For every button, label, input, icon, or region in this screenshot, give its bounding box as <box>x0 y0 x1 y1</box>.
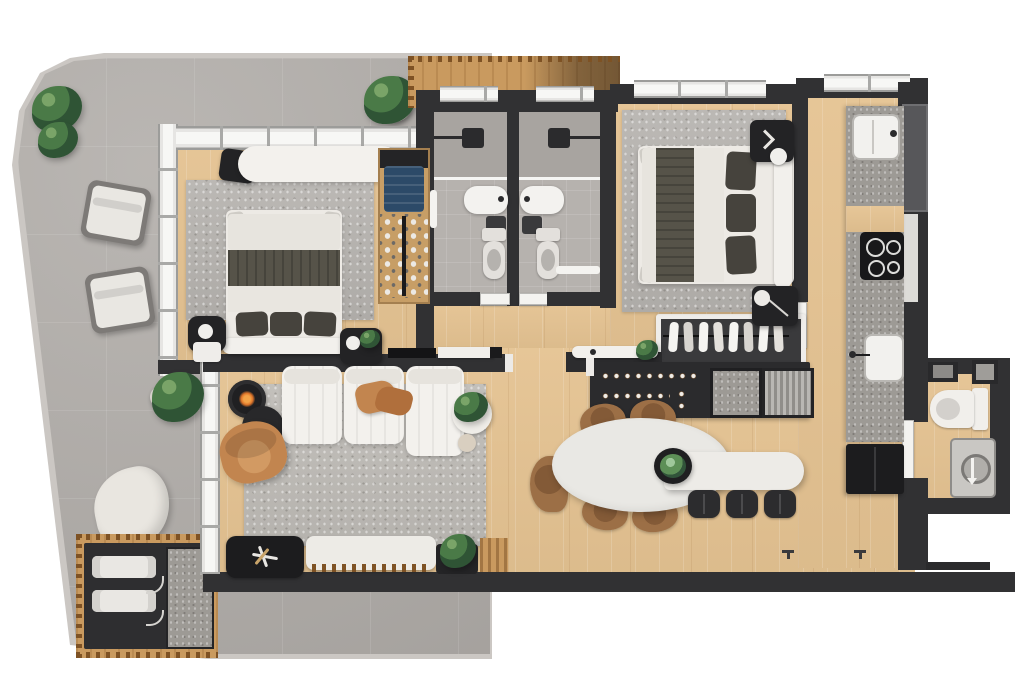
bedside-box <box>193 342 221 362</box>
master-window <box>634 80 766 98</box>
counter-wood-section <box>846 206 904 232</box>
mirror-cabinet <box>972 360 998 384</box>
lounge-chair <box>84 265 157 334</box>
deck-edge <box>76 534 218 540</box>
bed-pillow <box>726 194 756 232</box>
bathrooms-right-wall <box>600 92 616 308</box>
bed-pillow <box>270 312 302 336</box>
faucet <box>524 196 530 202</box>
prep-sink <box>864 334 904 382</box>
shower-glass <box>434 177 507 180</box>
bathroom2-toilet-tank <box>536 228 560 241</box>
lamp <box>754 290 770 306</box>
kitchen-tall-cabinet <box>902 104 928 212</box>
clothes-stack <box>384 166 424 212</box>
garment <box>743 322 753 352</box>
bed-pillow <box>235 311 268 337</box>
laundry-toilet-tank <box>972 388 988 430</box>
bed-throw <box>228 250 340 286</box>
bathroom1-bottom-wall <box>422 292 480 306</box>
wall-shelf <box>928 362 958 382</box>
bed-pillow <box>725 235 757 275</box>
tv-bar <box>388 348 436 358</box>
shoe-rack-rod <box>402 216 406 296</box>
kitchen-wall-panel <box>902 214 918 302</box>
wall-cap <box>586 358 594 376</box>
faucet <box>890 130 897 137</box>
shower-glass <box>519 177 600 180</box>
bathroom1-toilet-tank <box>482 228 506 241</box>
cooktop <box>860 232 904 280</box>
bench-tray-table <box>226 536 304 578</box>
bar-stool <box>726 490 758 518</box>
kitchen-sink <box>852 114 900 160</box>
wall-cap <box>505 354 513 372</box>
shelf-end <box>490 347 502 358</box>
lamp <box>770 148 787 165</box>
door-mark <box>859 550 862 559</box>
towel-rail <box>556 266 600 274</box>
faucet <box>849 351 856 358</box>
bed-pillow <box>303 311 336 337</box>
floor-console <box>926 562 990 570</box>
faucet <box>498 196 504 202</box>
ac-unit <box>92 556 156 578</box>
lamp <box>198 324 213 339</box>
stone-cabinet-panel <box>710 368 762 418</box>
bathroom2-bottom-wall <box>547 292 609 306</box>
garment <box>683 322 694 352</box>
garment <box>758 322 769 353</box>
ledge-decor <box>590 349 596 355</box>
candle-flame <box>239 391 255 407</box>
shower-arm <box>570 136 600 139</box>
sofa-module <box>282 366 342 444</box>
bottom-wall <box>203 572 1015 592</box>
planter-bowl <box>654 448 692 484</box>
bathroom1-toilet <box>483 241 505 279</box>
bed-throw <box>656 148 694 282</box>
bathroom2-window <box>536 86 594 102</box>
bar-stool <box>688 490 720 518</box>
deck-edge <box>76 652 218 658</box>
bathroom2-toilet <box>537 241 559 279</box>
bed-headboard <box>222 338 346 354</box>
radiator-unit <box>762 368 814 418</box>
bench-slats <box>312 564 432 572</box>
bedroom1-desk <box>238 146 400 182</box>
living-balcony-door <box>200 340 220 574</box>
master-right-wall <box>792 84 808 302</box>
garment <box>728 322 739 352</box>
bathroom1-pocket-door <box>480 293 510 305</box>
deck-edge <box>408 56 414 108</box>
bed-duvet <box>228 286 340 312</box>
bar-stool <box>764 490 796 518</box>
lamp <box>346 336 360 350</box>
garment <box>773 322 784 352</box>
garment <box>698 322 708 352</box>
towel-rail <box>430 190 437 228</box>
wine-bottle-column <box>676 388 688 414</box>
washing-machine <box>950 438 996 498</box>
side-tray <box>458 434 476 452</box>
lounge-chair <box>79 179 152 247</box>
bathroom2-pocket-door <box>519 293 549 305</box>
laundry-toilet <box>930 390 974 428</box>
bench-side-slats <box>480 538 508 572</box>
bed-foot-duvet <box>228 214 340 250</box>
garment <box>668 322 679 353</box>
bathrooms-middle-wall <box>507 94 519 306</box>
deck-edge <box>408 56 620 62</box>
laundry-bath-bottom-wall <box>906 498 1010 514</box>
shower-arm <box>434 136 464 139</box>
soundbar-shelf <box>438 347 494 358</box>
bed-duvet <box>694 148 724 282</box>
bedroom1-window-wall <box>158 124 178 376</box>
garment <box>713 322 724 353</box>
floor-plan-canvas <box>0 0 1024 683</box>
door-mark <box>787 550 790 559</box>
wine-bottle-row <box>600 370 696 385</box>
shower-head-icon <box>462 128 484 148</box>
bathroom1-window <box>440 86 498 102</box>
refrigerator <box>846 444 904 494</box>
deck-edge <box>76 534 82 658</box>
shower-head-icon <box>548 128 570 148</box>
